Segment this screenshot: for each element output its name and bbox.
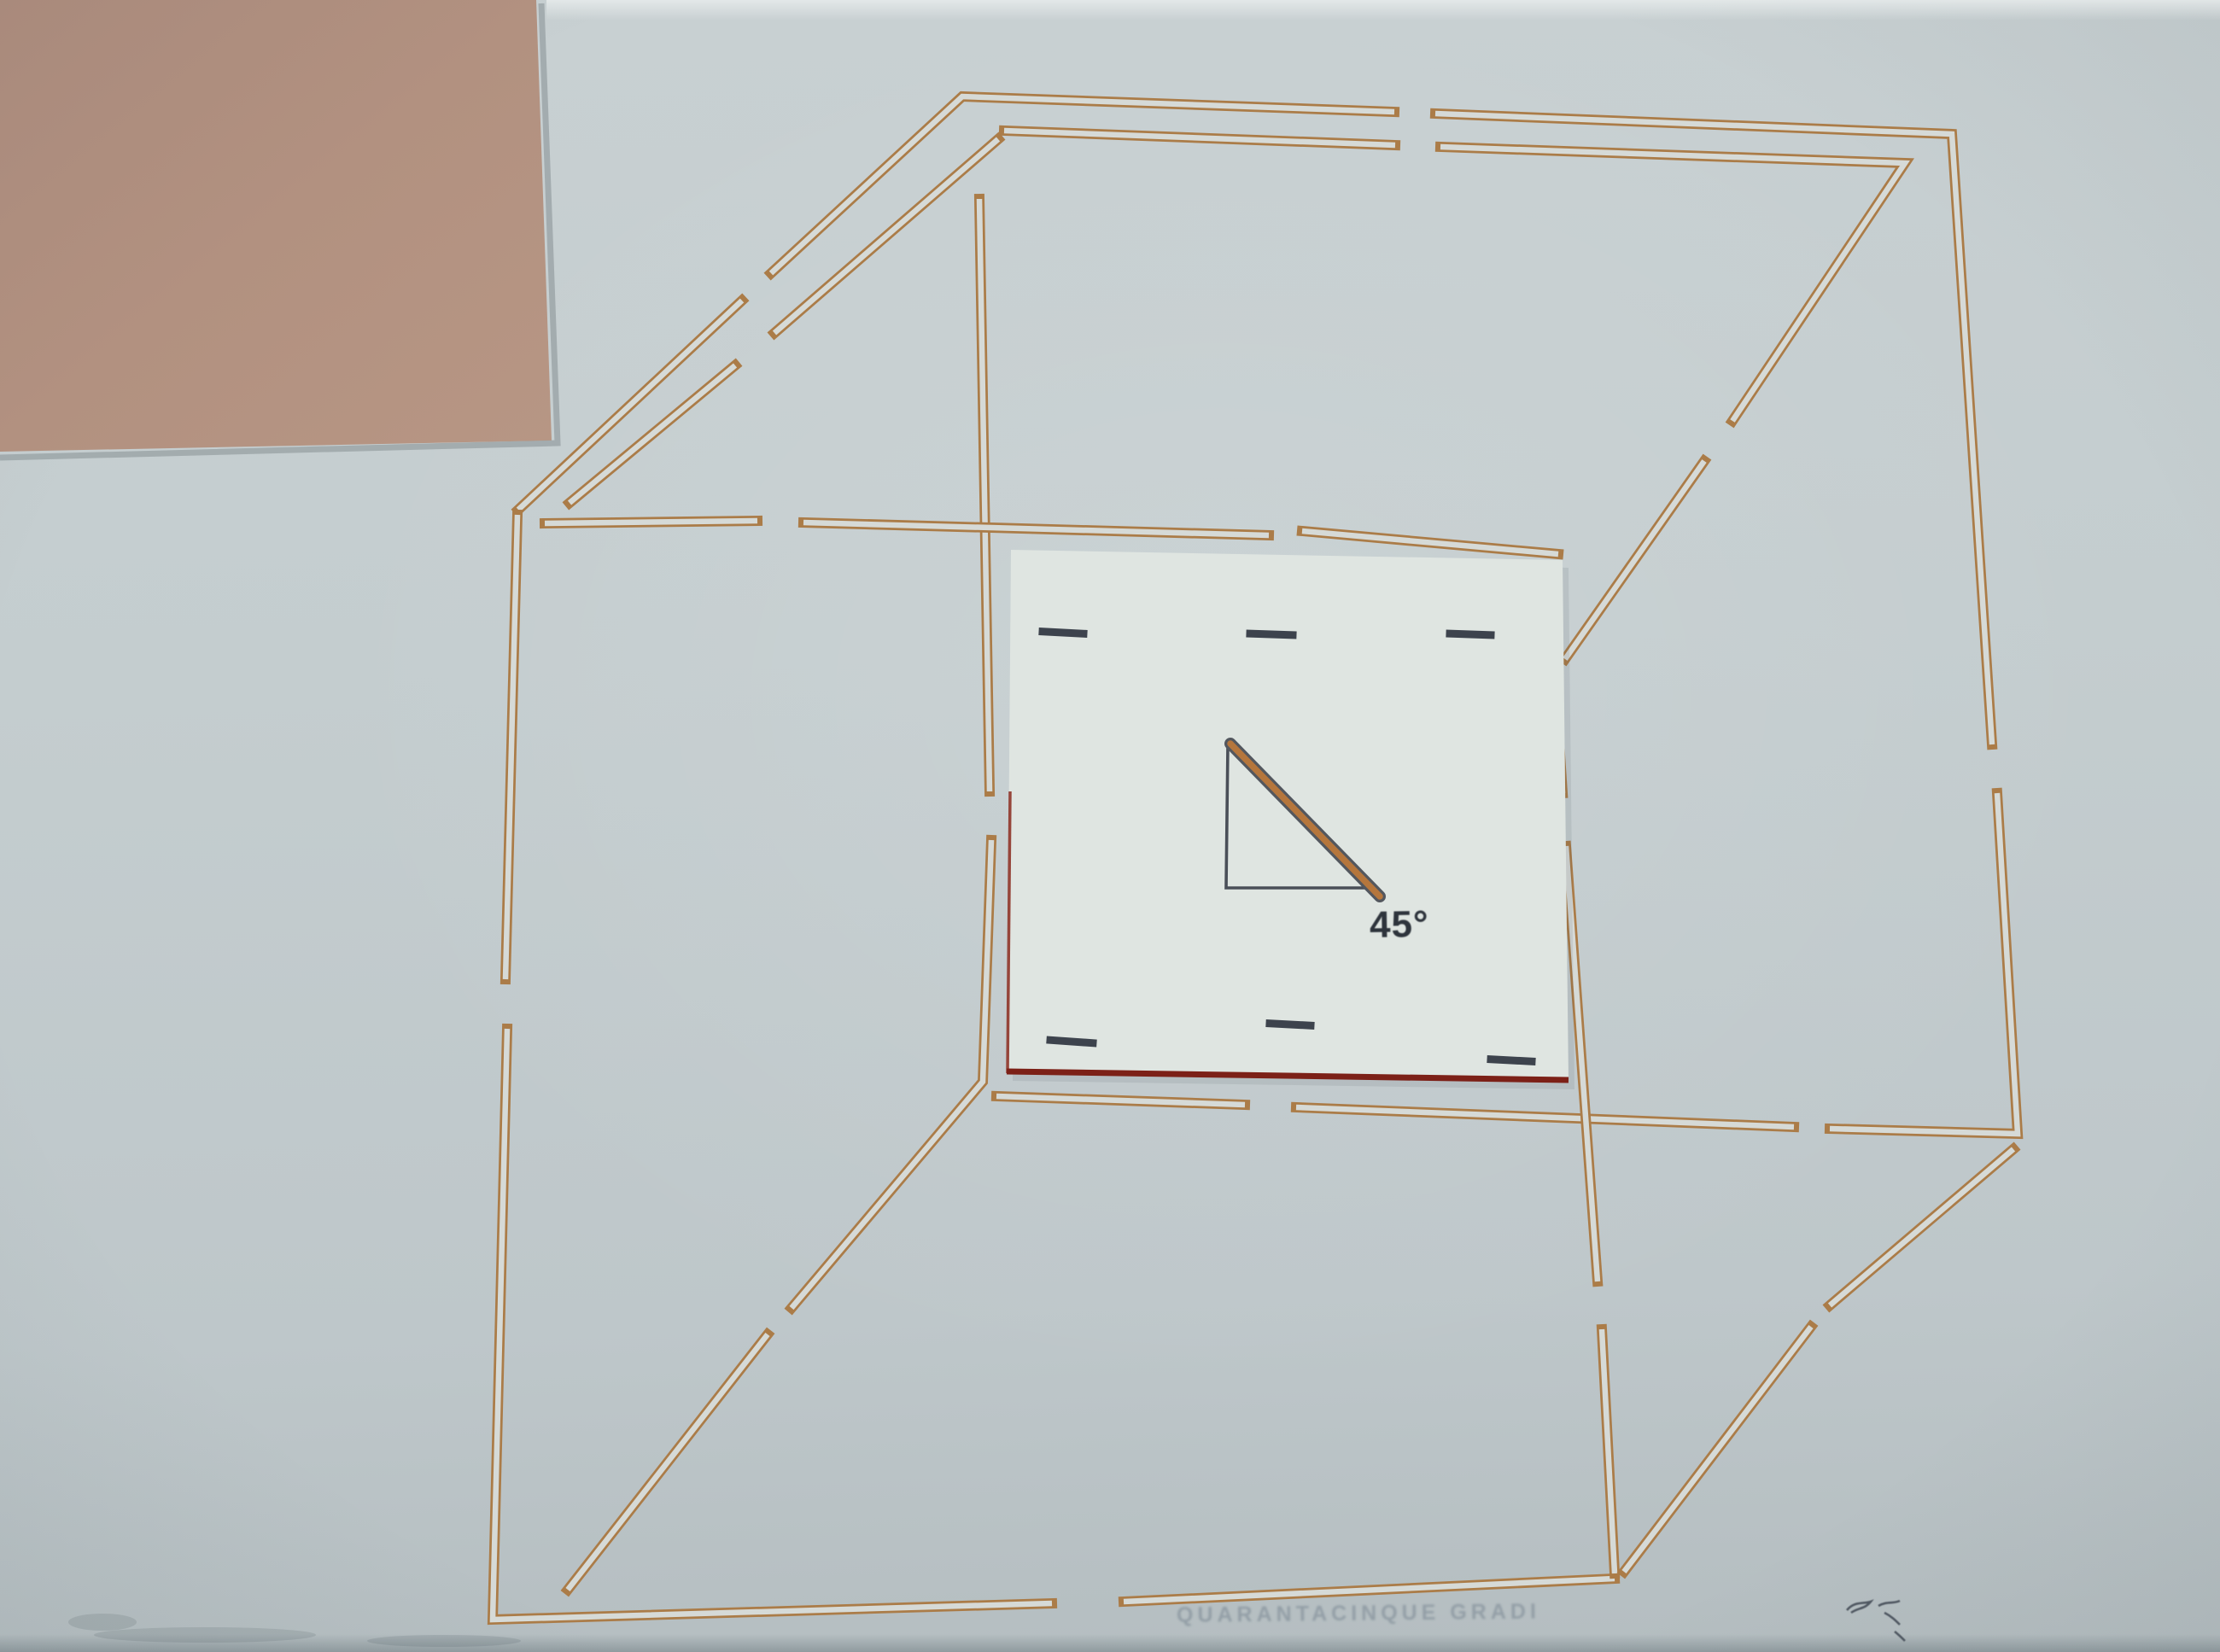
center-card [1007, 550, 1574, 1089]
cube-line-drawing [0, 0, 2220, 1652]
bar-back-right-lower-and-bottom-right [1830, 793, 2018, 1134]
bar-back-left-lower-and-bl-diagonal-upper [792, 840, 991, 1308]
photo-smudges [68, 1614, 521, 1647]
artist-signature [1847, 1601, 1905, 1641]
bar-front-left-lower-and-bottom-left [493, 1029, 1052, 1620]
artwork-photo: 45° QUARANTACINQUE GRADI [0, 0, 2220, 1652]
tan-paper-block [0, 0, 558, 458]
artwork-caption: QUARANTACINQUE GRADI [1177, 1600, 1510, 1634]
angle-label: 45° [1370, 902, 1464, 947]
bar-inner-top-right-and-tr-diagonal-upper [1440, 147, 1905, 421]
